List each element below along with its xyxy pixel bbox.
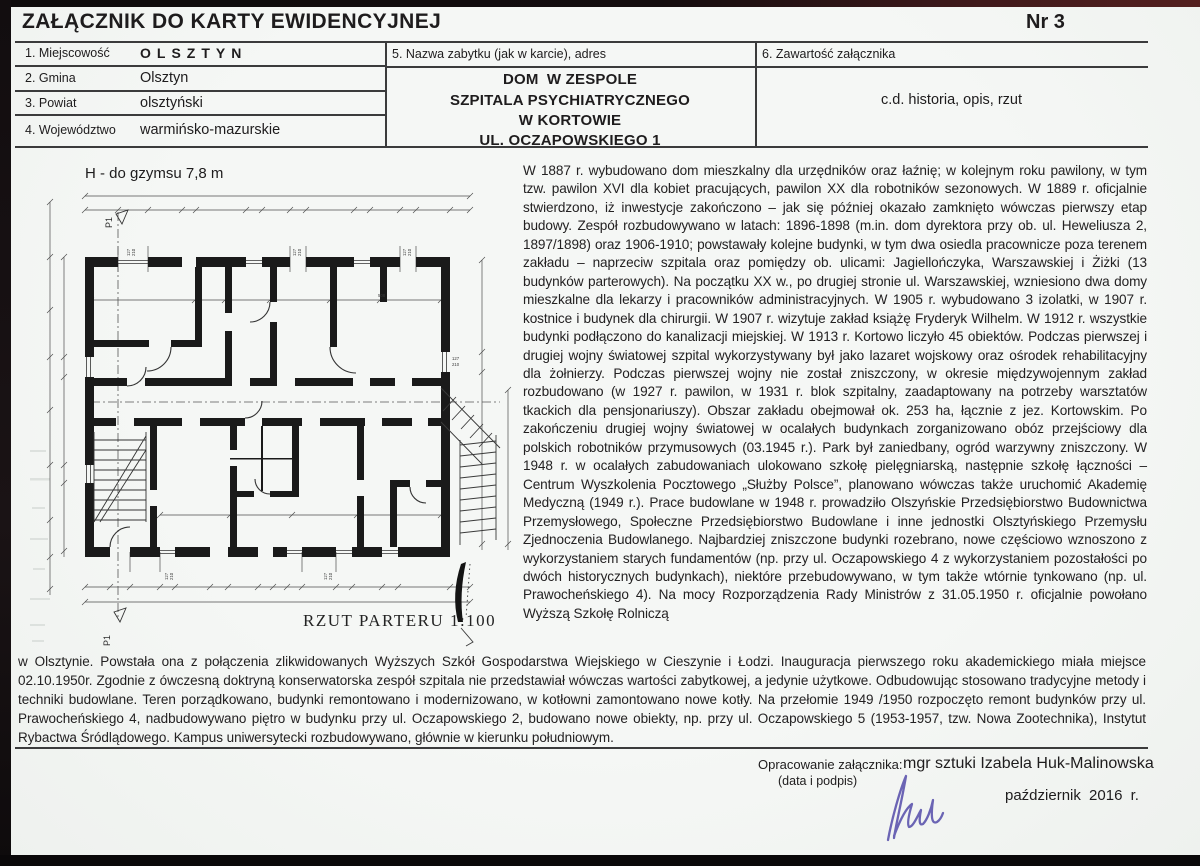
rule-row2 (15, 90, 385, 92)
page-title: ZAŁĄCZNIK DO KARTY EWIDENCYJNEJ (22, 10, 441, 34)
svg-text:210: 210 (169, 572, 174, 580)
svg-text:210: 210 (297, 248, 302, 256)
monument-name-line4: UL. OCZAPOWSKIEGO 1 (385, 132, 755, 149)
contents-label: 6. Zawartość załącznika (762, 47, 895, 61)
field-wojewodztwo-label: 4. Województwo (25, 123, 116, 137)
rule-row1 (15, 65, 385, 67)
monument-name-line2: SZPITALA PSYCHIATRYCZNEGO (385, 92, 755, 109)
field-wojewodztwo-value: warmińsko-mazurskie (140, 122, 280, 138)
marker-p1-top: P1 (104, 217, 114, 228)
scanned-page: ZAŁĄCZNIK DO KARTY EWIDENCYJNEJ Nr 3 1. … (0, 0, 1200, 866)
stairs (94, 432, 146, 522)
rule-footer (15, 747, 1148, 749)
date-signature-label: (data i podpis) (778, 774, 857, 788)
field-powiat-value: olsztyński (140, 95, 203, 111)
scan-edge-top (0, 0, 1200, 7)
attachment-number: Nr 3 (1026, 11, 1065, 34)
svg-text:127: 127 (452, 356, 460, 361)
field-gmina-value: Olsztyn (140, 70, 188, 86)
contents-value: c.d. historia, opis, rzut (755, 92, 1148, 108)
marker-p1-bottom: P1 (102, 635, 112, 646)
rule-title (15, 41, 1148, 43)
monument-name-bold: DOM (503, 71, 539, 88)
monument-label: 5. Nazwa zabytku (jak w karcie), adres (392, 47, 606, 61)
field-powiat-label: 3. Powiat (25, 96, 76, 110)
section-markers (114, 210, 128, 622)
monument-name-rest: W ZESPOLE (547, 71, 637, 88)
walls (85, 257, 450, 557)
monument-name-line1: DOM W ZESPOLE (385, 71, 755, 88)
monument-name-line3: W KORTOWIE (385, 112, 755, 129)
rule-colheads (385, 66, 1148, 68)
floor-plan-drawing: P1 P1 127 210 127 210 127 210 127 210 12… (30, 150, 530, 660)
history-text-continued: w Olsztynie. Powstała ona z połączenia z… (18, 652, 1146, 747)
field-miejscowosc-label: 1. Miejscowość (25, 46, 110, 60)
scan-edge-left (0, 0, 11, 866)
window-dimensions: 127 210 127 210 127 210 127 210 127 210 … (126, 248, 460, 580)
svg-text:210: 210 (452, 362, 460, 367)
rule-row3 (15, 114, 385, 116)
svg-text:210: 210 (407, 248, 412, 256)
scan-edge-bottom (0, 855, 1200, 866)
svg-text:210: 210 (328, 572, 333, 580)
document-date: październik 2016 r. (1005, 787, 1139, 804)
axis-lines (91, 212, 500, 620)
field-miejscowosc-value: OLSZTYN (140, 45, 247, 61)
plan-caption: RZUT PARTERU 1:100 (303, 611, 496, 631)
signature (876, 770, 966, 850)
svg-text:210: 210 (131, 248, 136, 256)
scan-artifacts (30, 450, 50, 642)
svg-text:508: 508 (378, 293, 386, 298)
field-gmina-label: 2. Gmina (25, 71, 76, 85)
history-text: W 1887 r. wybudowano dom mieszkalny dla … (523, 162, 1147, 623)
